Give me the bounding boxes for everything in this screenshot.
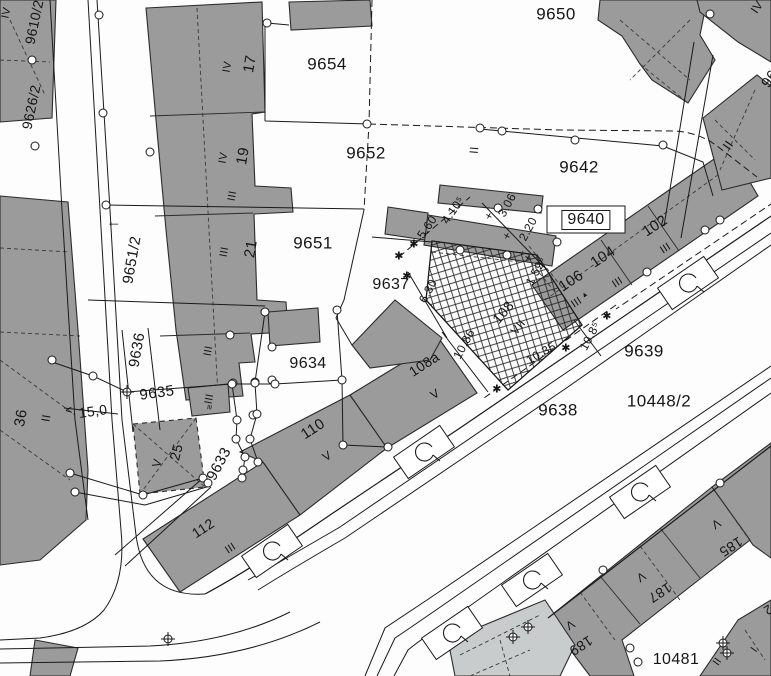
- survey-point: [95, 11, 103, 19]
- survey-point: [571, 136, 579, 144]
- survey-point: [89, 372, 97, 380]
- survey-point: [99, 109, 107, 117]
- survey-point: [716, 479, 724, 487]
- building-36: [0, 196, 88, 565]
- survey-point: [232, 435, 240, 443]
- buildings-layer: [0, 0, 771, 676]
- building: [188, 384, 230, 416]
- survey-point: [239, 466, 247, 474]
- survey-point: [659, 141, 667, 149]
- survey-point: [384, 443, 392, 451]
- cadastral-map: 9650965496529642964096519637963496399638…: [0, 0, 771, 676]
- building: [30, 640, 78, 676]
- survey-point: [716, 216, 724, 224]
- survey-point: [102, 201, 110, 209]
- survey-point: [233, 416, 241, 424]
- building: [700, 600, 771, 676]
- label-box-9640: [547, 206, 625, 233]
- building: [268, 308, 320, 346]
- building: [289, 0, 372, 30]
- survey-point: [238, 474, 246, 482]
- building: [598, 0, 715, 103]
- survey-point: [494, 204, 502, 212]
- survey-point-cross: [120, 385, 134, 399]
- survey-point: [226, 331, 234, 339]
- survey-point: [139, 491, 147, 499]
- survey-point: [66, 469, 74, 477]
- survey-point: [634, 658, 642, 666]
- map-drawing: [0, 0, 771, 676]
- survey-point: [363, 120, 371, 128]
- building-25: [133, 418, 205, 494]
- survey-point: [339, 441, 347, 449]
- survey-point: [71, 488, 79, 496]
- survey-point: [241, 453, 249, 461]
- survey-point: [476, 124, 484, 132]
- street-bay: [658, 256, 719, 309]
- survey-point: [701, 226, 709, 234]
- survey-point: [271, 380, 279, 388]
- survey-point: [261, 308, 269, 316]
- survey-point: [503, 251, 511, 259]
- survey-point: [228, 380, 236, 388]
- street-bay: [610, 465, 671, 518]
- survey-point: [268, 343, 276, 351]
- survey-point: [263, 19, 271, 27]
- survey-point: [456, 246, 464, 254]
- survey-point: [599, 566, 607, 574]
- survey-point: [48, 356, 56, 364]
- survey-point: [254, 458, 262, 466]
- survey-point: [204, 479, 212, 487]
- survey-point: [253, 410, 261, 418]
- survey-point: [338, 376, 346, 384]
- survey-point: [498, 127, 506, 135]
- survey-point: [626, 644, 634, 652]
- building: [438, 185, 543, 213]
- survey-point: [28, 56, 36, 64]
- survey-point: [146, 148, 154, 156]
- survey-point: [553, 238, 561, 246]
- building: [385, 207, 428, 240]
- building: [352, 300, 442, 368]
- survey-point: [643, 268, 651, 276]
- survey-point: [534, 205, 542, 213]
- survey-point: [333, 306, 341, 314]
- survey-point: [706, 10, 714, 18]
- survey-point: [246, 435, 254, 443]
- survey-point: [251, 379, 259, 387]
- survey-point: [31, 142, 39, 150]
